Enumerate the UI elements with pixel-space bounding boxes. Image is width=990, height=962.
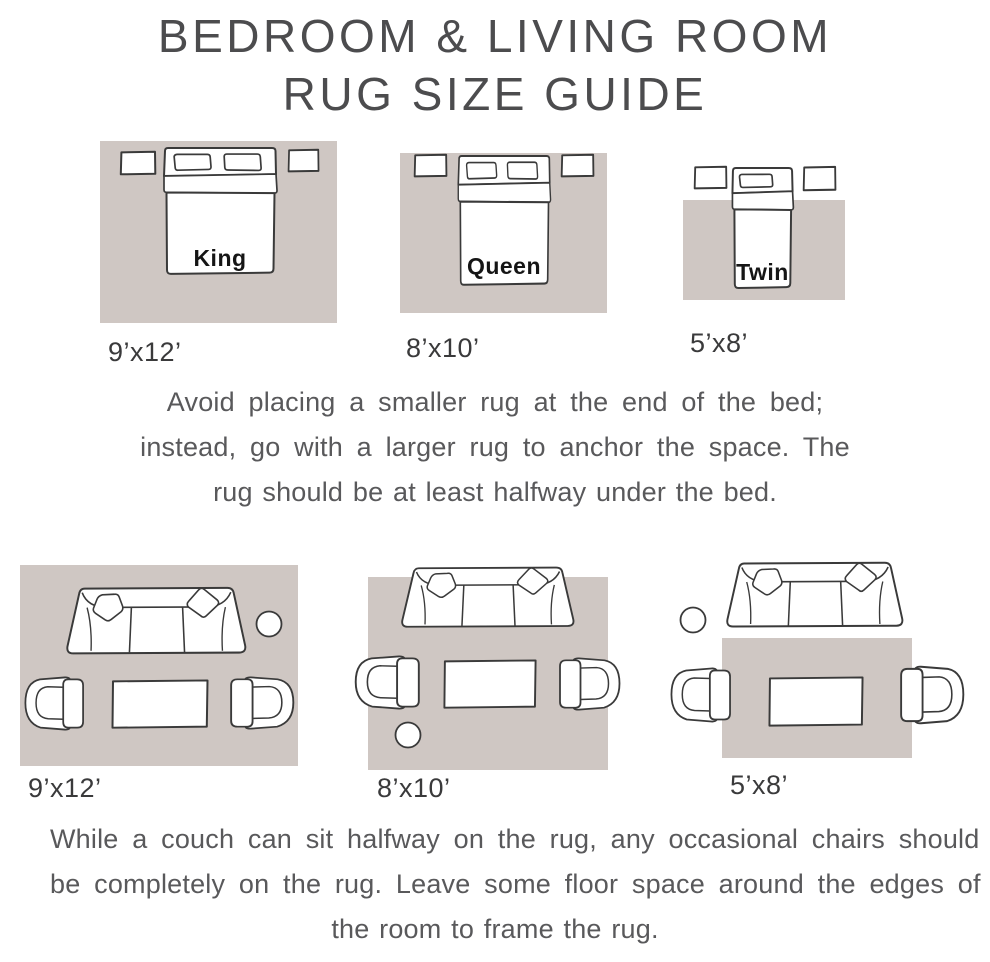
nightstand-left	[121, 152, 156, 175]
bedroom-diagram-king	[95, 135, 345, 330]
armchair-right	[901, 667, 963, 724]
rug-size-label-queen: 8’x10’	[406, 333, 480, 364]
nightstand-left	[415, 155, 447, 177]
side-table	[681, 608, 706, 633]
sofa	[727, 563, 902, 627]
coffee-table	[113, 680, 208, 727]
livingroom-tip-text: While a couch can sit halfway on the rug…	[50, 817, 940, 952]
coffee-table	[444, 660, 535, 707]
livingroom-diagram-5x8	[655, 550, 985, 765]
bedroom-tip-line-3: rug should be at least halfway under the…	[125, 470, 865, 515]
bedroom-diagram-twin	[675, 158, 860, 308]
side-table	[257, 612, 282, 637]
bed-label-king: King	[160, 245, 280, 271]
sofa	[402, 568, 573, 627]
rug-size-label-twin: 5’x8’	[690, 328, 748, 359]
rug-size-label-lr-8x10: 8’x10’	[377, 773, 451, 804]
page-title-line-2: RUG SIZE GUIDE	[0, 66, 990, 124]
rug-size-label-king: 9’x12’	[108, 337, 182, 368]
nightstand-left	[695, 167, 727, 189]
bedroom-tip-text: Avoid placing a smaller rug at the end o…	[125, 380, 865, 515]
livingroom-tip-line-2: be completely on the rug. Leave some flo…	[50, 862, 940, 907]
armchair-left	[25, 677, 83, 729]
bed-label-queen: Queen	[455, 253, 553, 279]
nightstand-right	[562, 155, 594, 177]
armchair-right	[231, 677, 293, 728]
nightstand-right	[804, 167, 836, 190]
nightstand-right	[289, 150, 319, 172]
rug-size-guide-page: BEDROOM & LIVING ROOM RUG SIZE GUIDE Kin…	[0, 0, 990, 962]
side-table	[396, 723, 421, 748]
livingroom-diagram-8x10	[345, 552, 630, 777]
bedroom-tip-line-2: instead, go with a larger rug to anchor …	[125, 425, 865, 470]
livingroom-tip-line-3: the room to frame the rug.	[50, 907, 940, 952]
coffee-table	[769, 677, 862, 725]
page-title: BEDROOM & LIVING ROOM RUG SIZE GUIDE	[0, 8, 990, 123]
rug-size-label-lr-9x12: 9’x12’	[28, 773, 102, 804]
livingroom-tip-line-1: While a couch can sit halfway on the rug…	[50, 817, 940, 862]
bed-label-twin: Twin	[728, 259, 797, 285]
page-title-line-1: BEDROOM & LIVING ROOM	[0, 8, 990, 66]
livingroom-diagram-9x12	[15, 558, 310, 773]
armchair-left	[671, 668, 730, 721]
rug-size-label-lr-5x8: 5’x8’	[730, 770, 788, 801]
armchair-left	[356, 656, 419, 708]
armchair-right	[560, 658, 620, 709]
sofa	[67, 588, 245, 654]
bedroom-tip-line-1: Avoid placing a smaller rug at the end o…	[125, 380, 865, 425]
bedroom-diagram-queen	[395, 145, 615, 320]
